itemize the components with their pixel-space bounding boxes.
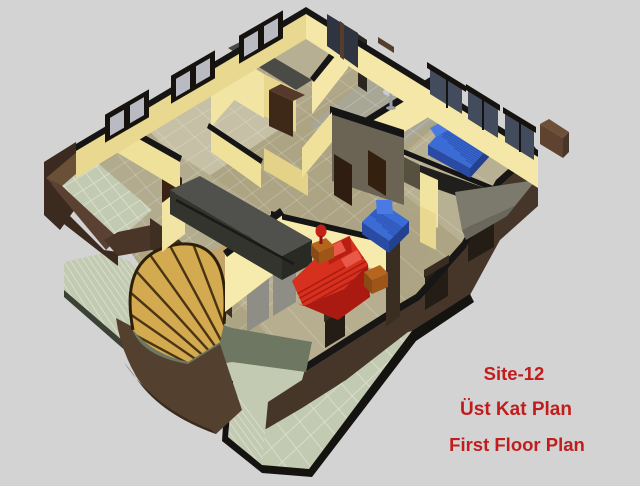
svg-text:Site-12: Site-12 [484, 363, 545, 384]
svg-text:Üst Kat Plan: Üst Kat Plan [460, 399, 572, 420]
svg-text:First Floor Plan: First Floor Plan [449, 434, 585, 455]
